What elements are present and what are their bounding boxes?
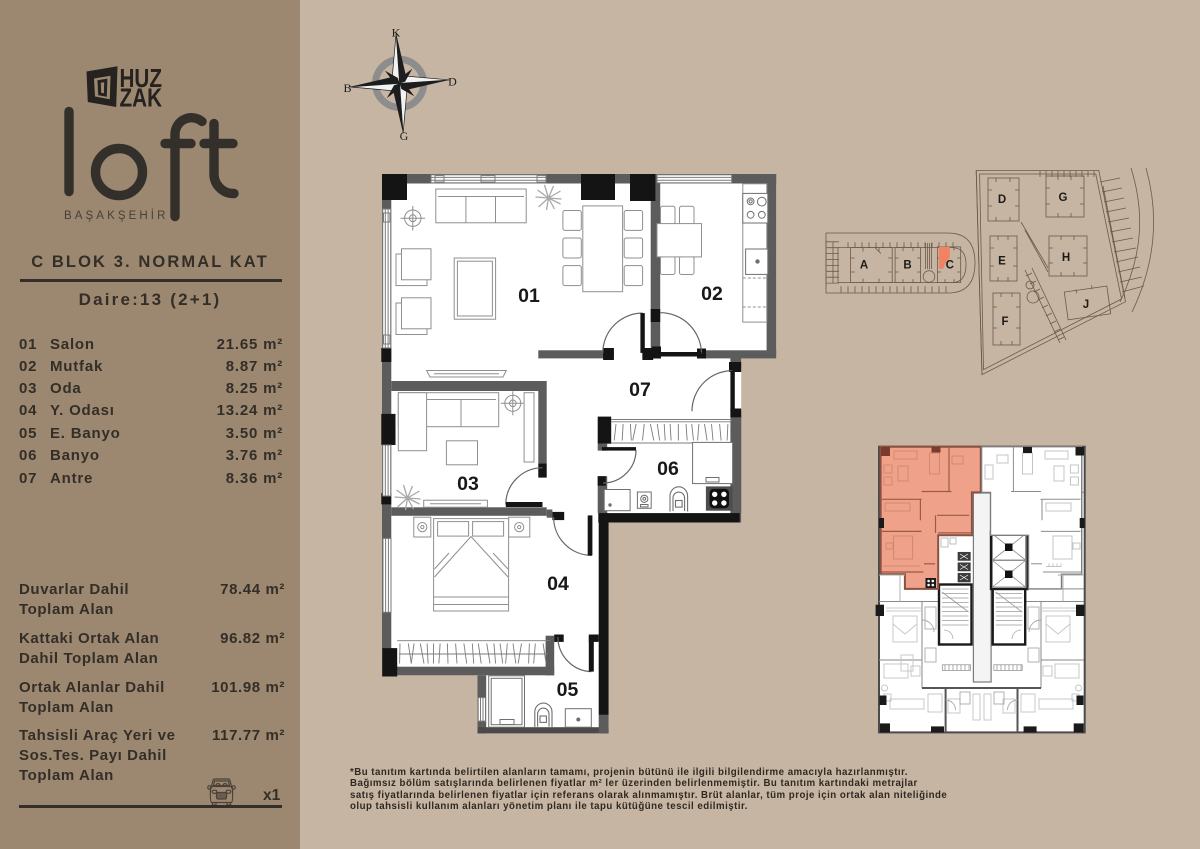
svg-text:A: A [860, 260, 868, 272]
svg-text:D: D [448, 75, 457, 89]
svg-text:07: 07 [629, 379, 651, 401]
svg-text:05: 05 [557, 679, 579, 701]
svg-text:B: B [903, 260, 911, 272]
svg-text:02: 02 [701, 283, 723, 305]
svg-text:E: E [998, 256, 1006, 268]
svg-text:C: C [946, 260, 954, 272]
svg-text:G: G [400, 129, 409, 143]
svg-text:03: 03 [457, 473, 479, 495]
svg-text:D: D [998, 194, 1006, 206]
svg-text:01: 01 [518, 285, 540, 307]
svg-text:B: B [343, 81, 351, 95]
svg-text:04: 04 [547, 573, 569, 595]
svg-text:06: 06 [657, 458, 679, 480]
svg-text:H: H [1062, 252, 1070, 264]
svg-text:J: J [1083, 299, 1089, 311]
svg-text:F: F [1001, 316, 1008, 328]
svg-text:G: G [1059, 192, 1068, 204]
svg-text:K: K [392, 26, 401, 40]
